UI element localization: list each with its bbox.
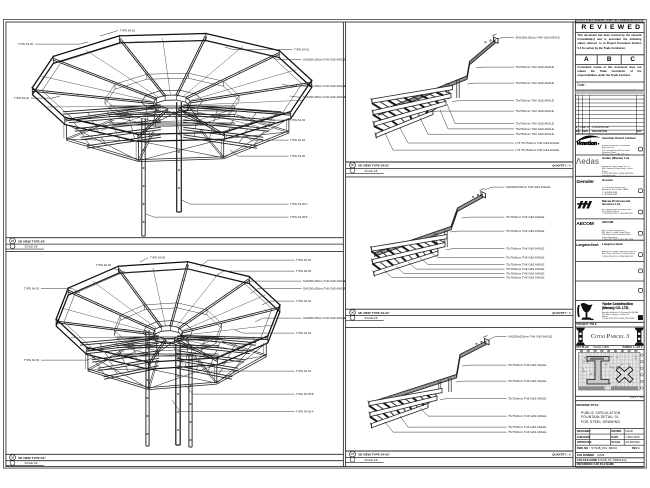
svg-text:05: 05 (351, 164, 354, 167)
svg-text:TYPE S4-05 A: TYPE S4-05 A (296, 410, 314, 414)
svg-text:QUANTITY : 4: QUANTITY : 4 (552, 311, 571, 315)
svg-text:TYPE S4-05 B: TYPE S4-05 B (296, 392, 314, 396)
svg-text:75x75x6mm THK G&S ANGLE: 75x75x6mm THK G&S ANGLE (506, 215, 544, 219)
svg-text:SHS150x150mm THK G&S ANGLE: SHS150x150mm THK G&S ANGLE (508, 335, 552, 339)
svg-text:TYPE S4-05: TYPE S4-05 (296, 269, 311, 273)
svg-text:TYPE S4-02: TYPE S4-02 (296, 299, 311, 303)
svg-text:3D VIEW TYPE S4-03': 3D VIEW TYPE S4-03' (358, 453, 390, 457)
svg-text:75x75x6mm THK G&S ANGLE: 75x75x6mm THK G&S ANGLE (506, 262, 544, 266)
svg-text:SHS150x150mm THK G&S ANGLE: SHS150x150mm THK G&S ANGLE (303, 287, 346, 291)
svg-text:75x75x6mm THK G&S ANGLE: 75x75x6mm THK G&S ANGLE (516, 132, 554, 136)
svg-text:3D VIEW TYPE S4'': 3D VIEW TYPE S4'' (18, 456, 46, 460)
svg-text:SHS150x150mm THK G&S ANGLE: SHS150x150mm THK G&S ANGLE (303, 95, 346, 99)
svg-text:3D VIEW TYPE S4-01': 3D VIEW TYPE S4-01' (358, 164, 390, 168)
svg-text:SHS150x150mm THK G&S ANGLE: SHS150x150mm THK G&S ANGLE (303, 84, 346, 88)
svg-text:QUANTITY : 4: QUANTITY : 4 (552, 164, 571, 168)
svg-text:3D VIEW TYPE S4-02': 3D VIEW TYPE S4-02' (358, 311, 390, 315)
svg-text:TYPE S4-03: TYPE S4-03 (290, 118, 305, 122)
svg-text:SHS150x150mm THK G&S ANGLE: SHS150x150mm THK G&S ANGLE (516, 36, 560, 40)
svg-text:75x75x6mm THK G&S ANGLE: 75x75x6mm THK G&S ANGLE (506, 267, 544, 271)
svg-text:TYPE S4-02: TYPE S4-02 (294, 48, 309, 52)
svg-text:QUANTITY : 4: QUANTITY : 4 (552, 453, 571, 457)
svg-text:04: 04 (11, 457, 14, 460)
svg-text:TYPE S4-04: TYPE S4-04 (290, 138, 305, 142)
svg-text:Venetian: Venetian (576, 141, 598, 147)
svg-text:75x75x6mm THK G&S ANGLE: 75x75x6mm THK G&S ANGLE (516, 122, 554, 126)
svg-text:TYPE S4-05 A: TYPE S4-05 A (290, 202, 308, 206)
svg-text:SHS150x150mm THK G&S ANGLE: SHS150x150mm THK G&S ANGLE (506, 185, 550, 189)
svg-text:75x75x6mm THK G&S ANGLE: 75x75x6mm THK G&S ANGLE (506, 276, 544, 280)
svg-text:L75 75x75x6mm THK G&S ANGLE: L75 75x75x6mm THK G&S ANGLE (516, 148, 560, 152)
svg-text:TYPE S4-03: TYPE S4-03 (24, 358, 39, 362)
svg-text:75x75x6mm THK G&S ANGLE: 75x75x6mm THK G&S ANGLE (516, 65, 554, 69)
svg-text:TYPE S4-05: TYPE S4-05 (290, 154, 305, 158)
svg-text:TYPE S4-05 B: TYPE S4-05 B (290, 215, 308, 219)
svg-text:SHS150x150mm THK G&S ANGLE: SHS150x150mm THK G&S ANGLE (303, 58, 346, 62)
svg-text:75x75x6mm THK G&S ANGLE: 75x75x6mm THK G&S ANGLE (508, 397, 546, 401)
svg-text:75x75x6mm THK G&S ANGLE: 75x75x6mm THK G&S ANGLE (508, 363, 546, 367)
svg-text:03: 03 (11, 240, 14, 243)
svg-text:75x75x6mm THK G&S ANGLE: 75x75x6mm THK G&S ANGLE (516, 99, 554, 103)
svg-text:SCALE 1/8: SCALE 1/8 (365, 458, 378, 462)
svg-text:TYPE S4-05: TYPE S4-05 (296, 258, 311, 262)
svg-text:TYPE S4-02: TYPE S4-02 (14, 96, 29, 100)
svg-text:75x75x6mm THK G&S ANGLE: 75x75x6mm THK G&S ANGLE (506, 247, 544, 251)
svg-text:75x75x6mm THK G&S ANGLE: 75x75x6mm THK G&S ANGLE (508, 425, 546, 429)
svg-text:75x75x6mm THK G&S ANGLE: 75x75x6mm THK G&S ANGLE (516, 109, 554, 113)
svg-text:75x75x6mm THK G&S ANGLE: 75x75x6mm THK G&S ANGLE (508, 414, 546, 418)
svg-text:SCALE 1/8: SCALE 1/8 (25, 245, 38, 249)
svg-text:L75 75x75x6mm THK G&S ANGLE: L75 75x75x6mm THK G&S ANGLE (516, 141, 560, 145)
svg-text:3D VIEW TYPE S4': 3D VIEW TYPE S4' (18, 239, 45, 243)
svg-text:06: 06 (351, 311, 354, 314)
svg-text:75x75x6mm THK G&S ANGLE: 75x75x6mm THK G&S ANGLE (508, 430, 546, 434)
svg-text:75x75x6mm THK G&S ANGLE: 75x75x6mm THK G&S ANGLE (508, 379, 546, 383)
svg-text:TYPE S4-03: TYPE S4-03 (296, 331, 311, 335)
svg-text:SHS150x150mm THK G&S ANGLE: SHS150x150mm THK G&S ANGLE (303, 279, 346, 283)
svg-text:75x75x6mm THK G&S ANGLE: 75x75x6mm THK G&S ANGLE (516, 81, 554, 85)
svg-text:SHS150x150mm THK G&S ANGLE: SHS150x150mm THK G&S ANGLE (303, 316, 346, 320)
svg-text:TYPE S4-01: TYPE S4-01 (120, 29, 135, 33)
svg-text:TYPE S4-05: TYPE S4-05 (18, 42, 33, 46)
svg-text:07: 07 (351, 453, 354, 456)
svg-text:SCALE 1/8: SCALE 1/8 (25, 461, 38, 465)
svg-text:75x75x6mm THK G&S ANGLE: 75x75x6mm THK G&S ANGLE (516, 127, 554, 131)
svg-text:TYPE S4-02: TYPE S4-02 (96, 263, 111, 267)
svg-text:TYPE S4-02: TYPE S4-02 (24, 287, 39, 291)
svg-text:75x75x6mm THK G&S ANGLE: 75x75x6mm THK G&S ANGLE (506, 229, 544, 233)
svg-text:75x75x6mm THK G&S ANGLE: 75x75x6mm THK G&S ANGLE (506, 255, 544, 259)
svg-text:SCALE 1/8: SCALE 1/8 (365, 316, 378, 320)
svg-text:SCALE 1/8: SCALE 1/8 (365, 169, 378, 173)
svg-text:TYPE S4-05: TYPE S4-05 (150, 256, 165, 260)
svg-text:TYPE S4-04: TYPE S4-04 (296, 369, 311, 373)
